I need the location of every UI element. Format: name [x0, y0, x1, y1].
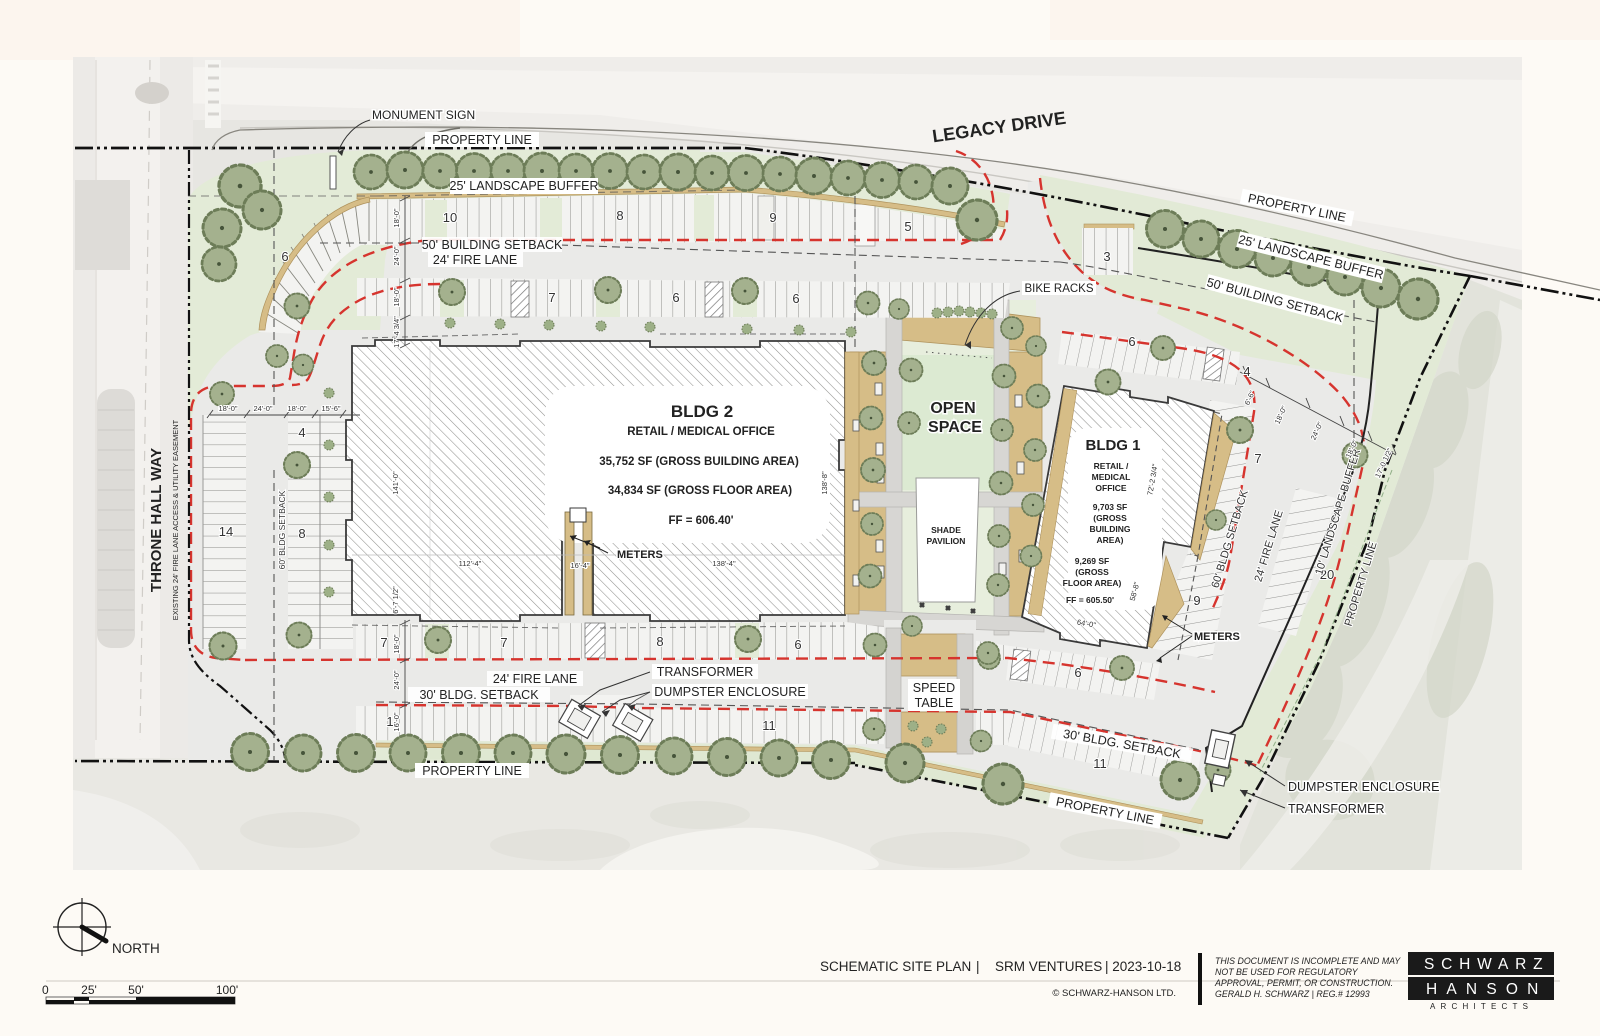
svg-text:RETAIL /: RETAIL /	[1094, 461, 1129, 471]
svg-text:8: 8	[298, 526, 305, 541]
svg-text:100': 100'	[216, 983, 238, 997]
svg-text:11: 11	[1093, 756, 1107, 771]
svg-text:9: 9	[769, 210, 776, 225]
svg-text:138'-8": 138'-8"	[820, 471, 829, 495]
svg-text:24'-0": 24'-0"	[392, 246, 401, 265]
svg-text:18'-0": 18'-0"	[392, 287, 401, 306]
svg-text:AREA): AREA)	[1097, 535, 1124, 545]
svg-text:SCHEMATIC SITE PLAN: SCHEMATIC SITE PLAN	[820, 959, 971, 974]
svg-text:SRM VENTURES: SRM VENTURES	[995, 959, 1102, 974]
svg-text:PROPERTY LINE: PROPERTY LINE	[432, 133, 532, 147]
svg-text:0: 0	[42, 983, 49, 997]
svg-text:SPEED: SPEED	[913, 681, 955, 695]
svg-text:5: 5	[904, 219, 911, 234]
svg-text:6: 6	[1128, 334, 1135, 349]
svg-text:APPROVAL, PERMIT, OR CONSTRUCT: APPROVAL, PERMIT, OR CONSTRUCTION.	[1214, 978, 1393, 988]
svg-text:6: 6	[794, 637, 801, 652]
svg-text:6: 6	[281, 249, 288, 264]
svg-text:BLDG 2: BLDG 2	[671, 402, 733, 421]
svg-text:© SCHWARZ-HANSON LTD.: © SCHWARZ-HANSON LTD.	[1052, 988, 1176, 999]
svg-text:25' LANDSCAPE BUFFER: 25' LANDSCAPE BUFFER	[450, 179, 599, 193]
svg-text:6: 6	[1074, 665, 1081, 680]
svg-text:THIS DOCUMENT IS INCOMPLETE AN: THIS DOCUMENT IS INCOMPLETE AND MAY	[1215, 956, 1401, 966]
svg-text:35,752 SF (GROSS BUILDING AREA: 35,752 SF (GROSS BUILDING AREA)	[599, 456, 799, 468]
svg-text:SHADE: SHADE	[931, 525, 961, 535]
svg-text:HANSON: HANSON	[1426, 981, 1548, 998]
svg-text:TRANSFORMER: TRANSFORMER	[657, 665, 754, 679]
svg-text:11: 11	[762, 718, 776, 733]
svg-text:8: 8	[656, 634, 663, 649]
svg-text:PROPERTY LINE: PROPERTY LINE	[422, 764, 522, 778]
svg-text:30' BLDG. SETBACK: 30' BLDG. SETBACK	[419, 688, 539, 702]
svg-text:FF = 605.50': FF = 605.50'	[1066, 595, 1114, 605]
svg-text:141'-0": 141'-0"	[391, 471, 400, 495]
svg-text:138'-4": 138'-4"	[712, 559, 736, 568]
svg-text:MEDICAL: MEDICAL	[1092, 472, 1131, 482]
svg-text:SCHWARZ: SCHWARZ	[1424, 956, 1549, 973]
svg-text:DUMPSTER ENCLOSURE: DUMPSTER ENCLOSURE	[654, 685, 805, 699]
svg-text:FLOOR AREA): FLOOR AREA)	[1063, 578, 1122, 588]
svg-text:24' FIRE LANE: 24' FIRE LANE	[493, 672, 577, 686]
svg-text:17'-4 3/4": 17'-4 3/4"	[392, 316, 401, 348]
svg-text:OPEN: OPEN	[930, 400, 975, 417]
svg-text:METERS: METERS	[1194, 631, 1240, 643]
svg-text:THRONE HALL WAY: THRONE HALL WAY	[148, 448, 165, 592]
svg-text:7: 7	[548, 290, 555, 305]
svg-text:112'-4": 112'-4"	[459, 559, 482, 568]
svg-text:PAVILION: PAVILION	[927, 536, 966, 546]
svg-text:24' FIRE LANE: 24' FIRE LANE	[433, 253, 517, 267]
svg-text:9,703 SF: 9,703 SF	[1093, 502, 1128, 512]
svg-text:TRANSFORMER: TRANSFORMER	[1288, 802, 1385, 816]
svg-text:METERS: METERS	[617, 549, 663, 561]
svg-text:NOT BE USED FOR REGULATORY: NOT BE USED FOR REGULATORY	[1215, 967, 1359, 977]
svg-text:| 2023-10-18: | 2023-10-18	[1105, 959, 1181, 974]
svg-text:14: 14	[219, 524, 233, 539]
svg-text:MONUMENT SIGN: MONUMENT SIGN	[372, 108, 475, 122]
svg-text:FF = 606.40': FF = 606.40'	[668, 515, 733, 527]
svg-text:BUILDING: BUILDING	[1089, 524, 1130, 534]
svg-text:7: 7	[1254, 451, 1261, 466]
svg-text:24'-0": 24'-0"	[392, 670, 401, 689]
svg-text:BIKE RACKS: BIKE RACKS	[1024, 283, 1093, 295]
svg-text:15'-6": 15'-6"	[321, 404, 340, 413]
svg-text:18'-0": 18'-0"	[287, 404, 306, 413]
svg-text:ARCHITECTS: ARCHITECTS	[1430, 1002, 1533, 1011]
svg-text:7: 7	[500, 635, 507, 650]
svg-text:|: |	[976, 959, 980, 974]
svg-text:6: 6	[792, 291, 799, 306]
svg-text:OFFICE: OFFICE	[1095, 483, 1126, 493]
svg-text:7: 7	[380, 635, 387, 650]
svg-text:50': 50'	[128, 983, 144, 997]
svg-text:6: 6	[672, 290, 679, 305]
svg-text:TABLE: TABLE	[915, 696, 954, 710]
svg-text:60' BLDG SETBACK: 60' BLDG SETBACK	[277, 490, 287, 569]
svg-text:4: 4	[1243, 364, 1250, 379]
svg-text:4: 4	[298, 425, 305, 440]
svg-text:(GROSS: (GROSS	[1093, 513, 1127, 523]
svg-text:10: 10	[443, 210, 457, 225]
svg-text:BLDG 1: BLDG 1	[1085, 437, 1140, 454]
svg-text:EXISTING 24' FIRE LANE ACCESS: EXISTING 24' FIRE LANE ACCESS & UTILITY …	[171, 419, 180, 620]
svg-text:6'-7 1/2": 6'-7 1/2"	[391, 586, 400, 614]
svg-text:16'-0": 16'-0"	[392, 712, 401, 731]
svg-text:(GROSS: (GROSS	[1075, 567, 1109, 577]
svg-text:24'-0": 24'-0"	[253, 404, 272, 413]
svg-text:NORTH: NORTH	[112, 941, 160, 956]
svg-text:18'-0": 18'-0"	[218, 404, 237, 413]
svg-text:25': 25'	[81, 983, 97, 997]
svg-text:SPACE: SPACE	[928, 419, 982, 436]
svg-text:18'-0": 18'-0"	[392, 208, 401, 227]
svg-text:8: 8	[616, 208, 623, 223]
svg-text:9: 9	[1193, 593, 1200, 608]
svg-text:16'-4": 16'-4"	[570, 561, 589, 570]
svg-text:50' BUILDING SETBACK: 50' BUILDING SETBACK	[422, 238, 563, 252]
svg-text:18'-0": 18'-0"	[392, 634, 401, 653]
svg-text:3: 3	[1103, 249, 1110, 264]
svg-text:GERALD H. SCHWARZ | REG.# 12: GERALD H. SCHWARZ | REG.# 12993	[1215, 989, 1370, 999]
svg-text:34,834 SF (GROSS FLOOR AREA): 34,834 SF (GROSS FLOOR AREA)	[608, 485, 792, 497]
svg-text:9,269 SF: 9,269 SF	[1075, 556, 1110, 566]
svg-text:DUMPSTER ENCLOSURE: DUMPSTER ENCLOSURE	[1288, 780, 1439, 794]
svg-text:RETAIL / MEDICAL OFFICE: RETAIL / MEDICAL OFFICE	[627, 426, 775, 438]
